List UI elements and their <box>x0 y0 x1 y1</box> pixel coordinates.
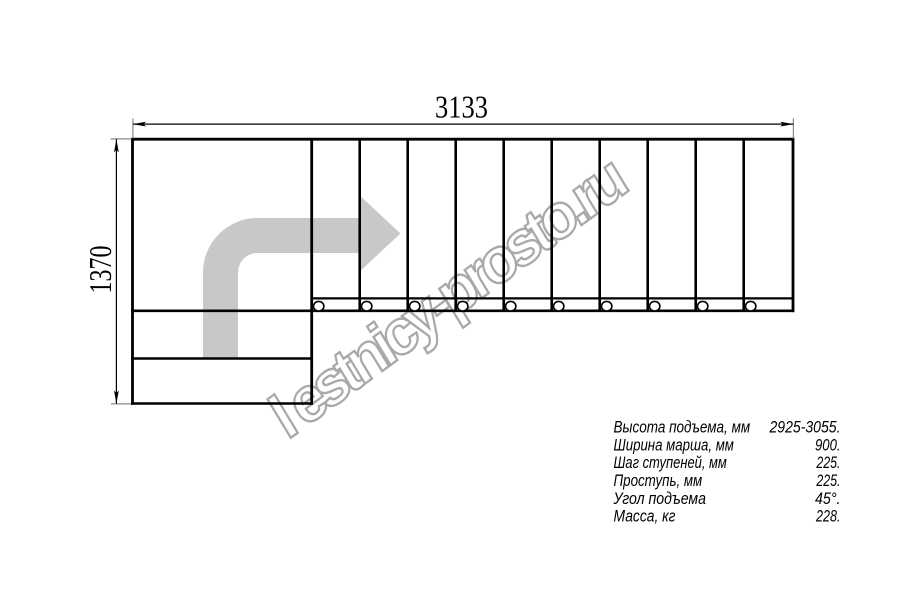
svg-text:Проступь, мм: Проступь, мм <box>614 471 703 490</box>
svg-text:45°.: 45°. <box>815 489 841 508</box>
svg-text:225.: 225. <box>816 453 841 472</box>
svg-text:Угол подъема: Угол подъема <box>613 489 706 508</box>
svg-text:3133: 3133 <box>435 89 488 125</box>
svg-text:1370: 1370 <box>82 246 118 294</box>
svg-text:2925-3055.: 2925-3055. <box>769 418 841 437</box>
svg-text:Шаг ступеней, мм: Шаг ступеней, мм <box>614 453 728 472</box>
svg-text:228.: 228. <box>815 507 840 526</box>
svg-text:900.: 900. <box>815 435 841 454</box>
svg-text:Высота подъема, мм: Высота подъема, мм <box>614 418 751 437</box>
svg-text:225.: 225. <box>816 471 841 490</box>
svg-text:Масса, кг: Масса, кг <box>614 507 676 526</box>
svg-text:Ширина марша, мм: Ширина марша, мм <box>614 435 735 454</box>
